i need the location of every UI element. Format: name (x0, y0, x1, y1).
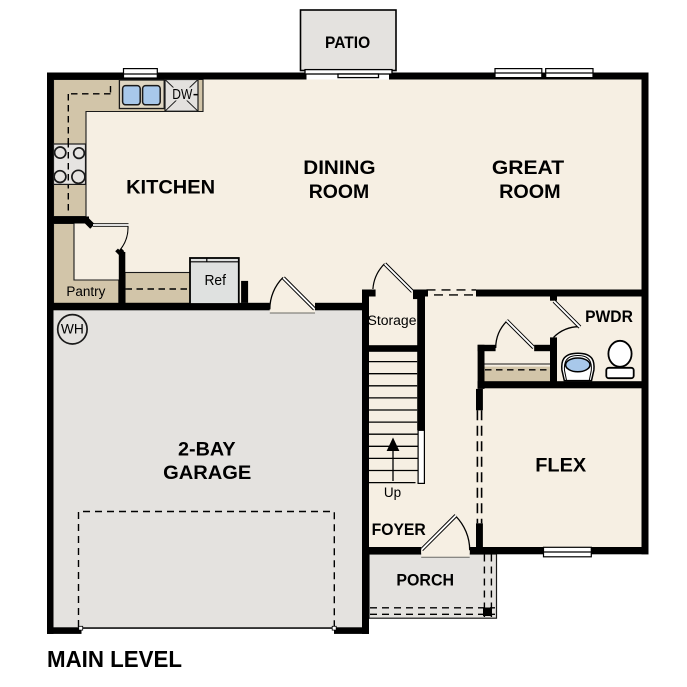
svg-text:PWDR: PWDR (585, 307, 633, 326)
svg-text:2-BAY: 2-BAY (178, 438, 236, 460)
svg-text:Up: Up (384, 485, 401, 500)
svg-text:PORCH: PORCH (396, 571, 454, 590)
svg-text:MAIN LEVEL: MAIN LEVEL (47, 646, 182, 672)
svg-text:FLEX: FLEX (535, 454, 586, 476)
svg-text:PATIO: PATIO (325, 33, 370, 52)
svg-text:Pantry: Pantry (66, 284, 105, 299)
svg-text:ROOM: ROOM (309, 181, 370, 203)
svg-text:ROOM: ROOM (499, 181, 561, 203)
svg-text:Storage: Storage (368, 313, 417, 328)
svg-text:Ref: Ref (204, 273, 226, 289)
svg-text:GREAT: GREAT (492, 157, 564, 179)
svg-text:KITCHEN: KITCHEN (126, 176, 215, 198)
svg-text:DINING: DINING (303, 157, 375, 179)
svg-text:DW: DW (172, 87, 192, 103)
svg-text:GARAGE: GARAGE (163, 462, 251, 484)
svg-text:WH: WH (61, 321, 84, 337)
svg-text:FOYER: FOYER (372, 520, 426, 539)
